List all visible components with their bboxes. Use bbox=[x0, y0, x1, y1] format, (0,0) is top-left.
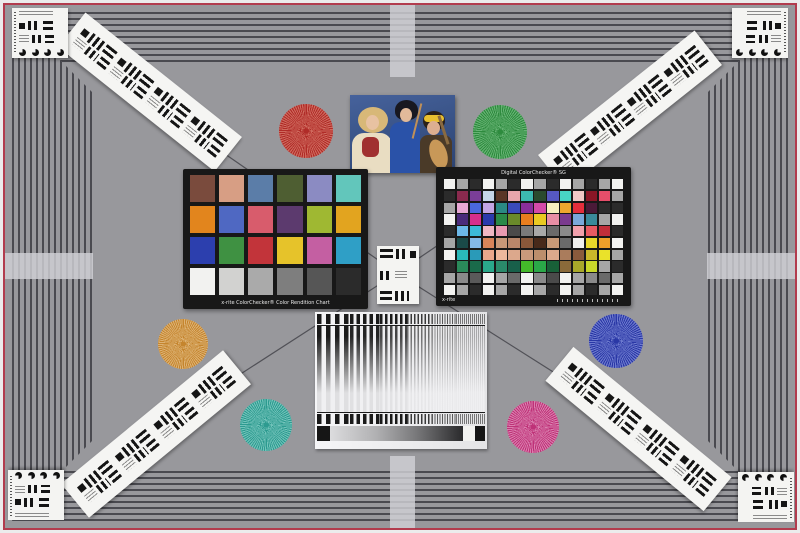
fan-mark bbox=[53, 472, 60, 479]
bar-group bbox=[747, 21, 757, 30]
color-patch bbox=[277, 237, 302, 264]
color-patch bbox=[508, 226, 519, 236]
color-patch bbox=[508, 250, 519, 260]
color-patch bbox=[573, 226, 584, 236]
sweep-segment bbox=[407, 414, 432, 424]
crosshair-bar bbox=[390, 456, 415, 528]
color-patch bbox=[444, 179, 455, 189]
strip-pattern-group bbox=[559, 361, 605, 405]
fan-mark bbox=[19, 49, 26, 56]
fan-mark bbox=[767, 474, 774, 481]
black-square bbox=[116, 57, 126, 67]
red-star bbox=[279, 104, 333, 158]
fan-mark bbox=[28, 472, 35, 479]
ramp-black-end-right bbox=[475, 426, 485, 441]
color-patch bbox=[508, 238, 519, 248]
color-patch bbox=[599, 203, 610, 213]
color-patch bbox=[534, 214, 545, 224]
black-square bbox=[80, 28, 90, 38]
color-patch bbox=[534, 203, 545, 213]
black-square bbox=[553, 156, 563, 166]
fan-mark bbox=[44, 49, 51, 56]
color-patch bbox=[521, 250, 532, 260]
pattern-row bbox=[736, 35, 781, 42]
color-patch bbox=[573, 191, 584, 201]
color-patch bbox=[248, 206, 273, 233]
color-patch bbox=[547, 285, 558, 295]
color-patch bbox=[219, 237, 244, 264]
color-patch bbox=[586, 226, 597, 236]
color-patch bbox=[586, 214, 597, 224]
color-patch bbox=[496, 261, 507, 271]
color-patch bbox=[534, 226, 545, 236]
color-patch bbox=[496, 285, 507, 295]
color-patch bbox=[277, 206, 302, 233]
ramp-black-end-left bbox=[317, 426, 330, 441]
color-patch bbox=[248, 268, 273, 295]
color-patch bbox=[508, 203, 519, 213]
color-patch bbox=[534, 179, 545, 189]
micro-text bbox=[19, 35, 29, 42]
color-patch bbox=[444, 214, 455, 224]
color-patch bbox=[248, 175, 273, 202]
bar-group bbox=[28, 485, 38, 492]
color-patch bbox=[496, 226, 507, 236]
black-square bbox=[153, 420, 163, 430]
fan-mark bbox=[755, 474, 762, 481]
sweep-segment bbox=[407, 314, 432, 324]
teal-star bbox=[240, 399, 292, 451]
color-patch bbox=[521, 226, 532, 236]
color-patch bbox=[560, 238, 571, 248]
colorchecker-classic-patches bbox=[190, 175, 361, 295]
color-patch bbox=[612, 179, 623, 189]
color-patch bbox=[470, 214, 481, 224]
colorchecker-classic-chart: x-rite ColorChecker® Color Rendition Cha… bbox=[183, 169, 368, 309]
color-patch bbox=[219, 175, 244, 202]
corner-resolution-card bbox=[732, 8, 788, 58]
ramp-white-patch bbox=[463, 426, 475, 441]
color-patch bbox=[573, 261, 584, 271]
fan-mark bbox=[749, 49, 756, 56]
black-square bbox=[604, 393, 614, 403]
color-patch bbox=[599, 285, 610, 295]
magenta-star bbox=[507, 401, 559, 453]
color-patch bbox=[547, 179, 558, 189]
micro-text bbox=[777, 487, 787, 494]
color-patch bbox=[573, 238, 584, 248]
sweep-segment bbox=[317, 314, 350, 324]
color-patch bbox=[483, 203, 494, 213]
color-patch bbox=[470, 191, 481, 201]
bar-group bbox=[764, 487, 774, 494]
color-patch bbox=[586, 250, 597, 260]
color-patch bbox=[444, 191, 455, 201]
bar-group bbox=[753, 500, 763, 509]
black-square bbox=[679, 455, 689, 465]
sweep-segment bbox=[380, 314, 407, 324]
portrait-test-photo bbox=[350, 95, 455, 173]
pattern-row bbox=[742, 514, 787, 519]
black-square bbox=[115, 452, 125, 462]
color-patch bbox=[534, 250, 545, 260]
edge-ruler bbox=[14, 12, 16, 54]
color-patch bbox=[483, 273, 494, 283]
color-patch bbox=[457, 238, 468, 248]
sg-grayscale-ruler bbox=[557, 299, 621, 302]
color-patch bbox=[219, 268, 244, 295]
edge-ruler bbox=[10, 474, 12, 516]
color-patch bbox=[612, 273, 623, 283]
color-patch bbox=[573, 214, 584, 224]
bar-group bbox=[380, 271, 392, 280]
color-patch bbox=[560, 273, 571, 283]
color-patch bbox=[560, 214, 571, 224]
color-patch bbox=[483, 238, 494, 248]
color-patch bbox=[483, 179, 494, 189]
bar-group bbox=[752, 487, 761, 494]
sweep-main-area bbox=[317, 326, 485, 412]
micro-text bbox=[753, 514, 787, 519]
color-patch bbox=[508, 191, 519, 201]
sweep-segment bbox=[432, 314, 455, 324]
color-patch bbox=[496, 250, 507, 260]
color-patch bbox=[547, 261, 558, 271]
divider-line-bottom bbox=[317, 412, 485, 413]
colorchecker-sg-chart: Digital ColorChecker® SG x-rite bbox=[436, 167, 631, 306]
color-patch bbox=[599, 261, 610, 271]
fan-mark bbox=[57, 49, 64, 56]
fan-mark-row bbox=[736, 49, 781, 56]
bar-group bbox=[24, 498, 36, 507]
strip-pattern-group bbox=[182, 114, 229, 157]
bar-group bbox=[380, 249, 393, 259]
color-patch bbox=[277, 268, 302, 295]
black-square bbox=[642, 424, 652, 434]
fan-mark bbox=[736, 49, 743, 56]
color-patch bbox=[457, 179, 468, 189]
color-patch bbox=[483, 250, 494, 260]
color-patch bbox=[534, 191, 545, 201]
color-patch bbox=[307, 175, 332, 202]
color-patch bbox=[586, 273, 597, 283]
strip-pattern-group bbox=[145, 85, 192, 128]
sweep-segment bbox=[350, 414, 379, 424]
color-patch bbox=[534, 285, 545, 295]
color-patch bbox=[470, 203, 481, 213]
color-patch bbox=[573, 203, 584, 213]
fan-mark bbox=[761, 49, 768, 56]
bar-group bbox=[28, 21, 40, 30]
color-patch bbox=[457, 261, 468, 271]
micro-text bbox=[15, 485, 25, 492]
sweep-segment bbox=[317, 414, 350, 424]
strip-pattern-group bbox=[108, 56, 155, 99]
color-patch bbox=[508, 214, 519, 224]
bar-group bbox=[396, 249, 407, 259]
bar-group bbox=[760, 21, 772, 30]
color-patch bbox=[508, 285, 519, 295]
micro-text bbox=[15, 512, 49, 517]
black-square bbox=[567, 363, 577, 373]
color-patch bbox=[470, 226, 481, 236]
black-square bbox=[410, 251, 416, 258]
color-patch bbox=[612, 214, 623, 224]
color-patch bbox=[483, 226, 494, 236]
orange-star bbox=[158, 319, 208, 369]
color-patch bbox=[521, 273, 532, 283]
color-patch bbox=[573, 179, 584, 189]
strip-pattern-group bbox=[596, 392, 642, 436]
color-patch bbox=[534, 238, 545, 248]
color-patch bbox=[457, 203, 468, 213]
color-patch bbox=[470, 250, 481, 260]
color-patch bbox=[586, 238, 597, 248]
color-patch bbox=[444, 285, 455, 295]
color-patch bbox=[483, 285, 494, 295]
color-patch bbox=[457, 285, 468, 295]
fan-mark bbox=[15, 472, 22, 479]
fan-mark bbox=[780, 474, 787, 481]
color-patch bbox=[496, 214, 507, 224]
color-patch bbox=[586, 261, 597, 271]
color-patch bbox=[612, 238, 623, 248]
black-square bbox=[775, 23, 781, 29]
color-patch bbox=[496, 191, 507, 201]
test-chart-scene: x-rite ColorChecker® Color Rendition Cha… bbox=[0, 0, 800, 533]
color-patch bbox=[521, 214, 532, 224]
color-patch bbox=[470, 261, 481, 271]
black-square bbox=[77, 483, 87, 493]
color-patch bbox=[457, 273, 468, 283]
color-patch bbox=[521, 261, 532, 271]
color-patch bbox=[444, 203, 455, 213]
color-patch bbox=[573, 273, 584, 283]
color-patch bbox=[560, 250, 571, 260]
center-resolution-card bbox=[377, 246, 419, 304]
pattern-row bbox=[19, 35, 64, 42]
colorchecker-sg-brand: x-rite bbox=[442, 297, 455, 303]
color-patch bbox=[612, 261, 623, 271]
color-patch bbox=[190, 206, 215, 233]
color-patch bbox=[336, 237, 361, 264]
color-patch bbox=[444, 226, 455, 236]
color-patch bbox=[599, 238, 610, 248]
sweep-segment bbox=[380, 414, 407, 424]
black-square bbox=[626, 97, 636, 107]
color-patch bbox=[444, 261, 455, 271]
frequency-sweep-card bbox=[315, 312, 487, 449]
color-patch bbox=[521, 238, 532, 248]
strip-pattern-group bbox=[72, 26, 119, 69]
black-square bbox=[781, 501, 787, 507]
color-patch bbox=[508, 261, 519, 271]
color-patch bbox=[496, 179, 507, 189]
sweep-bar-strip-bottom bbox=[317, 414, 485, 424]
crosshair-bar bbox=[390, 5, 415, 77]
color-patch bbox=[599, 214, 610, 224]
black-square bbox=[19, 23, 25, 29]
bar-group bbox=[45, 35, 54, 42]
color-patch bbox=[470, 238, 481, 248]
color-patch bbox=[547, 214, 558, 224]
sweep-fade-overlay bbox=[317, 326, 485, 412]
color-patch bbox=[483, 214, 494, 224]
black-square bbox=[190, 116, 200, 126]
color-patch bbox=[599, 273, 610, 283]
fan-mark bbox=[32, 49, 39, 56]
color-patch bbox=[547, 203, 558, 213]
photo-figure-left-bodice bbox=[362, 137, 379, 157]
color-patch bbox=[190, 237, 215, 264]
black-square bbox=[15, 499, 21, 505]
black-square bbox=[153, 87, 163, 97]
fan-mark bbox=[774, 49, 781, 56]
color-patch bbox=[586, 191, 597, 201]
bar-group bbox=[39, 498, 49, 507]
micro-text bbox=[395, 271, 407, 280]
color-patch bbox=[547, 273, 558, 283]
edge-ruler bbox=[790, 476, 792, 518]
black-square bbox=[663, 68, 673, 78]
pattern-row bbox=[15, 498, 60, 507]
pattern-row bbox=[736, 11, 781, 16]
color-patch bbox=[612, 250, 623, 260]
fan-mark-row bbox=[15, 472, 60, 479]
color-patch bbox=[599, 250, 610, 260]
bar-group bbox=[746, 35, 755, 42]
colorchecker-classic-label: x-rite ColorChecker® Color Rendition Cha… bbox=[183, 300, 368, 306]
pattern-row bbox=[736, 21, 781, 30]
grayscale-ramp-row bbox=[317, 426, 485, 441]
color-patch bbox=[219, 206, 244, 233]
color-patch bbox=[457, 214, 468, 224]
micro-text bbox=[19, 11, 53, 16]
color-patch bbox=[444, 250, 455, 260]
corner-resolution-card bbox=[738, 472, 794, 522]
pattern-row bbox=[19, 11, 64, 16]
color-patch bbox=[457, 226, 468, 236]
color-patch bbox=[612, 203, 623, 213]
color-patch bbox=[248, 237, 273, 264]
black-square bbox=[590, 126, 600, 136]
color-patch bbox=[336, 268, 361, 295]
color-patch bbox=[483, 261, 494, 271]
fan-mark-row bbox=[742, 474, 787, 481]
bar-group bbox=[380, 291, 392, 301]
colorchecker-sg-patches bbox=[444, 179, 623, 295]
colorchecker-sg-title: Digital ColorChecker® SG bbox=[436, 170, 631, 176]
edge-ruler bbox=[784, 12, 786, 54]
black-square bbox=[191, 389, 201, 399]
color-patch bbox=[336, 206, 361, 233]
color-patch bbox=[534, 273, 545, 283]
color-patch bbox=[307, 237, 332, 264]
color-patch bbox=[560, 179, 571, 189]
color-patch bbox=[521, 179, 532, 189]
color-patch bbox=[277, 175, 302, 202]
color-patch bbox=[547, 250, 558, 260]
fan-mark bbox=[40, 472, 47, 479]
blue-star bbox=[589, 314, 643, 368]
pattern-row bbox=[15, 485, 60, 492]
bar-group bbox=[32, 35, 42, 42]
strip-pattern-group bbox=[633, 422, 679, 466]
color-patch bbox=[560, 191, 571, 201]
bar-group bbox=[766, 500, 778, 509]
color-patch bbox=[599, 191, 610, 201]
pattern-row bbox=[742, 487, 787, 494]
pattern-row bbox=[19, 21, 64, 30]
color-patch bbox=[547, 238, 558, 248]
color-patch bbox=[612, 226, 623, 236]
color-patch bbox=[470, 273, 481, 283]
color-patch bbox=[560, 226, 571, 236]
color-patch bbox=[508, 179, 519, 189]
color-patch bbox=[336, 175, 361, 202]
color-patch bbox=[521, 203, 532, 213]
color-patch bbox=[496, 238, 507, 248]
grayscale-ramp bbox=[330, 426, 463, 441]
color-patch bbox=[547, 226, 558, 236]
color-patch bbox=[470, 179, 481, 189]
color-patch bbox=[190, 268, 215, 295]
color-patch bbox=[586, 203, 597, 213]
color-patch bbox=[586, 179, 597, 189]
bar-group bbox=[395, 291, 409, 301]
photo-figure-center-face bbox=[400, 108, 412, 122]
sweep-segment bbox=[432, 414, 455, 424]
color-patch bbox=[560, 203, 571, 213]
strip-pattern-group bbox=[671, 453, 717, 497]
color-patch bbox=[307, 206, 332, 233]
color-patch bbox=[547, 191, 558, 201]
color-patch bbox=[483, 191, 494, 201]
sweep-bar-strip-top bbox=[317, 314, 485, 324]
color-patch bbox=[586, 285, 597, 295]
color-patch bbox=[190, 175, 215, 202]
fan-mark bbox=[742, 474, 749, 481]
bar-group bbox=[41, 485, 50, 492]
corner-resolution-card bbox=[8, 470, 64, 520]
green-star bbox=[473, 105, 527, 159]
bar-group bbox=[758, 35, 768, 42]
pattern-row bbox=[742, 500, 787, 509]
color-patch bbox=[496, 203, 507, 213]
bar-group bbox=[43, 21, 53, 30]
color-patch bbox=[612, 191, 623, 201]
color-patch bbox=[307, 268, 332, 295]
color-patch bbox=[534, 261, 545, 271]
color-patch bbox=[573, 285, 584, 295]
color-patch bbox=[521, 191, 532, 201]
color-patch bbox=[470, 285, 481, 295]
color-patch bbox=[599, 226, 610, 236]
pattern-row bbox=[15, 512, 60, 517]
corner-resolution-card bbox=[12, 8, 68, 58]
micro-text bbox=[771, 35, 781, 42]
color-patch bbox=[444, 273, 455, 283]
crosshair-bar bbox=[5, 253, 93, 279]
color-patch bbox=[560, 261, 571, 271]
photo-figure-left-face bbox=[366, 115, 379, 130]
color-patch bbox=[573, 250, 584, 260]
color-patch bbox=[457, 250, 468, 260]
photo-figure-right-face bbox=[427, 121, 440, 135]
sweep-segment bbox=[456, 314, 485, 324]
color-patch bbox=[612, 285, 623, 295]
color-patch bbox=[599, 179, 610, 189]
